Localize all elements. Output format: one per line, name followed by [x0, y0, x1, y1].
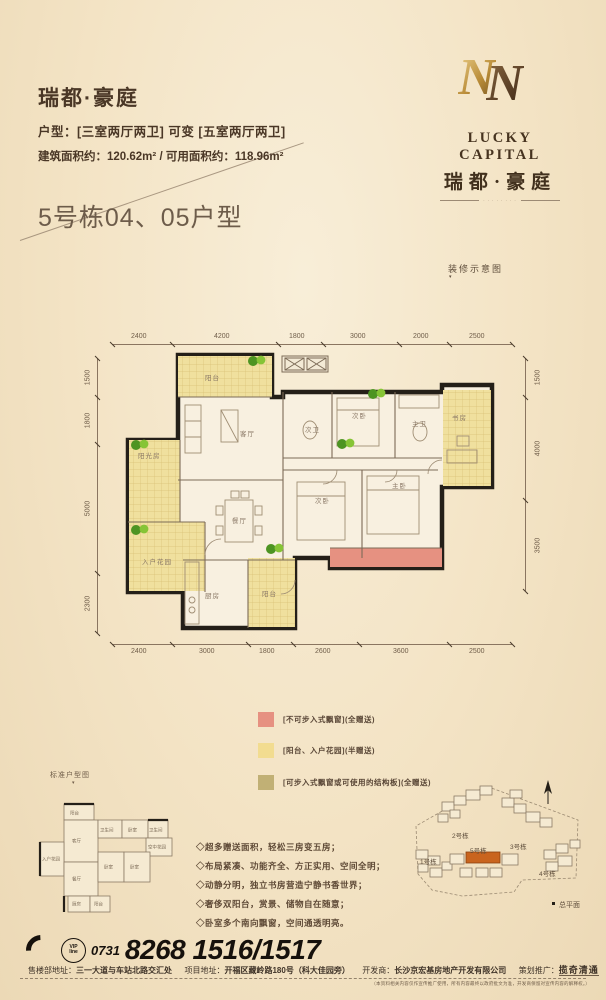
feature-item: ◇奢侈双阳台，赏景、储物自在随意； [196, 895, 385, 914]
phone-number: 8268 1516/1517 [125, 934, 320, 966]
area-separator: / [159, 151, 162, 163]
project-brand: 瑞都·豪庭 [38, 82, 139, 112]
room-label-study: 书房 [452, 412, 467, 422]
mini-room-3: 卧室 [128, 827, 137, 833]
feature-list: ◇超多赠送面积，轻松三房变五房； ◇布局紧凑、功能齐全、方正实用、空间全明； ◇… [196, 838, 385, 933]
unit-type-option-2: [五室两厅两卫] [198, 125, 285, 139]
area-label-1: 建筑面积约： [38, 151, 107, 163]
dim-left-0: 1500 [84, 370, 91, 386]
room-label-bed2b: 次卧 [315, 495, 330, 505]
building-cluster-3 [502, 790, 552, 827]
dim-right-2: 3500 [534, 538, 541, 554]
dim-top-3: 3000 [350, 333, 366, 340]
room-label-sunroom: 阳光房 [138, 450, 161, 460]
dim-bottom-5: 2500 [469, 648, 485, 655]
room-label-master-bed: 主卧 [392, 480, 407, 490]
vip-line-badge: VIP line [61, 938, 86, 963]
agency-label: 策划推广： [519, 966, 559, 975]
feature-item: ◇卧室多个南向飘窗，空间通透明亮。 [196, 914, 385, 933]
legend-swatch-yellow [258, 743, 274, 758]
feature-item: ◇动静分明，独立书房营造宁静书香世界； [196, 876, 385, 895]
section-title: 5号栋04、05户型 [38, 198, 243, 234]
dim-bottom-4: 3600 [393, 648, 409, 655]
area-value-1: 120.62m² [107, 151, 156, 163]
mini-room-9: 卧室 [130, 864, 139, 870]
room-label-kitchen: 厨房 [205, 590, 220, 600]
room-label-bed2a: 次卧 [352, 410, 367, 420]
dim-left-2: 5000 [84, 501, 91, 517]
mini-room-7: 餐厅 [72, 876, 81, 882]
phone-area-code: 0731 [91, 943, 120, 958]
room-label-balcony-top: 阳台 [205, 372, 220, 382]
site-boundary [416, 786, 578, 896]
site-caption: 总平面 [559, 900, 580, 910]
dim-top-5: 2500 [469, 333, 485, 340]
area-label-2: 可用面积约： [166, 151, 235, 163]
dim-line-right [525, 358, 526, 591]
area-value-2: 118.96m² [235, 151, 284, 163]
legend-label-yellow: [阳台、入户花园](半赠送) [283, 745, 375, 756]
mini-plan-arrow-icon: ▾ [72, 780, 75, 786]
mini-room-10: 厨房 [72, 901, 81, 907]
brand-logo: N N LUCKY CAPITAL 瑞都·豪庭 · · · · · · · · [440, 52, 560, 203]
mini-plan-svg [38, 790, 193, 935]
vip-line-text-2: line [69, 950, 78, 955]
agency-logo: 揽奇清通 [559, 965, 599, 976]
unit-type-mid: 可变 [168, 125, 194, 139]
site-label-building-4: 4号栋 [539, 868, 556, 878]
building-cluster-2 [438, 786, 492, 822]
developer-value: 长沙京宏基房地产开发有限公司 [394, 966, 506, 975]
dim-top-1: 4200 [214, 333, 230, 340]
unit-type-line: 户型：[三室两厅两卫] 可变 [五室两厅两卫] [38, 121, 286, 140]
dim-right-0: 1500 [534, 370, 541, 386]
mini-room-6: 入户花园 [42, 856, 60, 862]
site-caption-marker [552, 902, 555, 905]
dim-top-4: 2000 [413, 333, 429, 340]
site-label-building-1: 1号栋 [420, 856, 437, 866]
sales-office-value: 三一大道与车站北路交汇处 [76, 966, 172, 975]
site-plan-svg [402, 762, 602, 937]
feature-item: ◇布局紧凑、功能齐全、方正实用、空间全明； [196, 857, 385, 876]
dim-bottom-2: 1800 [259, 648, 275, 655]
monogram-n-gold: N [458, 52, 496, 104]
room-label-master-bath: 主卫 [412, 418, 427, 428]
room-label-bath2: 次卫 [305, 424, 320, 434]
logo-name-en: LUCKY CAPITAL [440, 130, 560, 164]
elevator-lobby [282, 356, 328, 372]
dim-top-2: 1800 [289, 333, 305, 340]
logo-name-cn: 瑞都·豪庭 [440, 167, 560, 194]
poster-page: 瑞都·豪庭 户型：[三室两厅两卫] 可变 [五室两厅两卫] 建筑面积约：120.… [0, 0, 606, 1000]
mini-room-8: 卧室 [104, 864, 113, 870]
deco-note: 装修示意图 [448, 262, 503, 275]
dim-bottom-3: 2600 [315, 648, 331, 655]
legend-item-pink: [不可步入式飘窗](全赠送) [258, 712, 375, 727]
footer-address-line: 售楼部地址：三一大道与车站北路交汇处 项目地址：开福区藏岭路180号（科大佳园旁… [28, 963, 588, 976]
sales-office-label: 售楼部地址： [28, 966, 76, 975]
dim-left-1: 1800 [84, 413, 91, 429]
footer-separator [20, 978, 586, 979]
mini-room-0: 阳台 [70, 810, 79, 816]
feature-item: ◇超多赠送面积，轻松三房变五房； [196, 838, 385, 857]
logo-tagline: · · · · · · · · [440, 198, 560, 203]
room-label-living: 客厅 [240, 428, 255, 438]
dim-bottom-0: 2400 [131, 648, 147, 655]
room-label-balcony-bottom: 阳台 [262, 588, 277, 598]
footer-disclaimer: （本资料相关内容仅作宣传推广使用，所有内容最终以政府批文为准，开发商保留对宣传内… [296, 981, 590, 987]
project-address-value: 开福区藏岭路180号（科大佳园旁） [224, 966, 349, 975]
mini-room-11: 阳台 [94, 901, 103, 907]
building-cluster-4 [544, 840, 580, 871]
dim-left-3: 2300 [84, 596, 91, 612]
unit-type-option-1: [三室两厅两卫] [77, 125, 164, 139]
dim-top-0: 2400 [131, 333, 147, 340]
project-address-label: 项目地址： [184, 966, 224, 975]
north-arrow-icon [544, 780, 552, 804]
mini-room-4: 卫生间 [149, 827, 163, 833]
room-label-entry-garden: 入户花园 [142, 556, 172, 566]
mini-plan-caption: 标准户型图 [50, 770, 90, 780]
dim-bottom-1: 3000 [199, 648, 215, 655]
mini-room-1: 客厅 [72, 838, 81, 844]
site-label-building-3: 3号栋 [510, 841, 527, 851]
nn-monogram-icon: N N [440, 52, 560, 130]
room-label-dining: 餐厅 [232, 515, 247, 525]
legend-label-pink: [不可步入式飘窗](全赠送) [283, 714, 375, 725]
mini-room-2: 卫生间 [100, 827, 114, 833]
site-label-building-2: 2号栋 [452, 830, 469, 840]
phone-block: VIP line 0731 8268 1516/1517 [26, 934, 320, 966]
unit-type-label: 户型： [38, 125, 77, 139]
developer-label: 开发商： [362, 966, 394, 975]
dim-right-1: 4000 [534, 441, 541, 457]
legend-swatch-pink [258, 712, 274, 727]
deco-note-arrow-icon: ▾ [449, 274, 452, 280]
bay-window-pink [330, 548, 442, 567]
legend-swatch-khaki [258, 775, 274, 790]
area-line: 建筑面积约：120.62m² / 可用面积约：118.96m² [38, 148, 283, 164]
mini-room-5: 空中花园 [148, 844, 166, 850]
legend-item-yellow: [阳台、入户花园](半赠送) [258, 743, 375, 758]
floor-plan-svg [105, 350, 505, 640]
site-label-building-5: 5号栋 [470, 845, 487, 855]
